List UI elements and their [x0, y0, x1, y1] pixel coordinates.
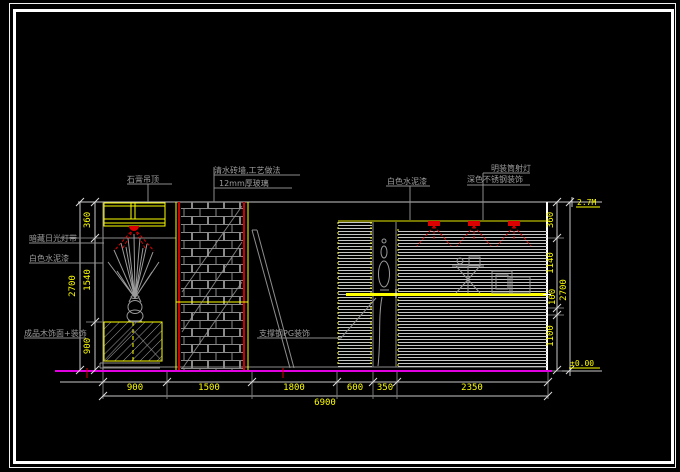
label-brick-wall: 清水砖墙,工艺做法 [214, 167, 281, 175]
dim-left-1540: 1540 [83, 269, 93, 291]
glass-panel [252, 230, 294, 368]
dim-left-900: 900 [83, 338, 93, 354]
dim-left-360: 360 [83, 212, 93, 228]
level-bottom: ±0.00 [570, 359, 594, 368]
slat-panel-right [398, 229, 547, 367]
dim-900: 900 [127, 383, 143, 393]
floor-line [55, 370, 552, 372]
dim-right-1100: 1100 [546, 325, 556, 347]
niche-vase [378, 239, 390, 366]
cad-elevation-canvas: 900 1500 1800 600 350 2350 6900 360 1540… [0, 0, 680, 472]
label-left-paint: 白色水泥漆 [29, 255, 69, 263]
dim-left-2700-total: 2700 [68, 275, 78, 297]
dim-1800: 1800 [283, 383, 305, 393]
dim-350: 350 [377, 383, 393, 393]
label-right-lamp: 明装筒射灯 [491, 165, 531, 173]
level-top: 2.7M [577, 198, 596, 207]
label-support: 支撑钢PG装饰 [259, 330, 310, 338]
dim-6900-total: 6900 [314, 398, 336, 408]
label-right-steel: 深色不锈钢装饰 [467, 176, 523, 184]
linework-layer: 900 1500 1800 600 350 2350 6900 360 1540… [0, 0, 680, 472]
label-ceiling: 石膏吊顶 [127, 176, 159, 184]
dim-right-100: 100 [548, 289, 558, 305]
dim-right-360: 360 [546, 212, 556, 228]
dim-1500: 1500 [198, 383, 220, 393]
label-mid-paint: 白色水泥漆 [387, 178, 427, 186]
brick-hatch [181, 202, 243, 370]
dim-600: 600 [347, 383, 363, 393]
label-left-cabinet: 成品木饰面+装饰 [24, 330, 87, 338]
label-left-lamp: 暗藏日光灯带 [29, 235, 77, 243]
dim-2350: 2350 [461, 383, 483, 393]
dim-right-1140: 1140 [546, 252, 556, 274]
dim-right-2700-total: 2700 [559, 279, 569, 301]
brick-column [176, 202, 248, 370]
level-markers: 2.7M ±0.00 [569, 198, 600, 368]
label-glass: 12mm厚玻璃 [219, 180, 269, 188]
lower-cabinet [100, 322, 162, 368]
